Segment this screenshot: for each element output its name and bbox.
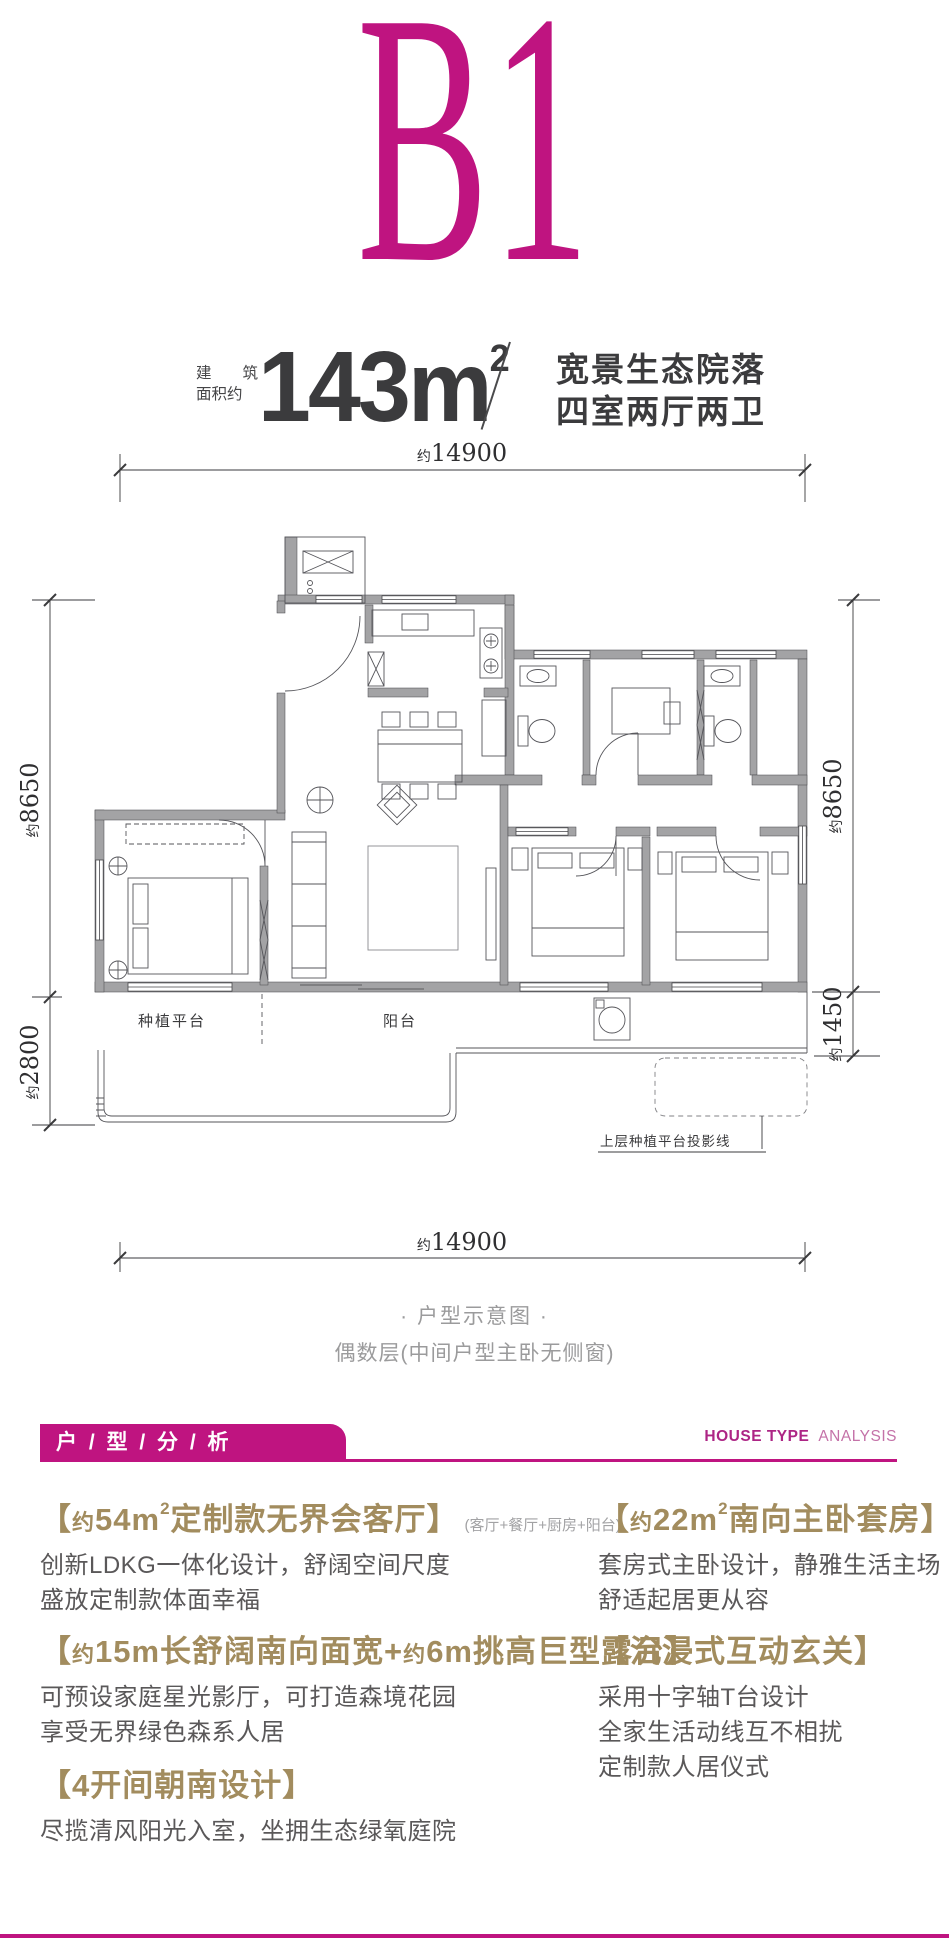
caption-line2: 偶数层(中间户型主卧无侧窗) bbox=[0, 1337, 949, 1367]
feature-line: 定制款人居仪式 bbox=[598, 1750, 886, 1785]
master-bedroom bbox=[109, 820, 265, 979]
area-label: 建筑 面积约 bbox=[196, 363, 258, 405]
analysis-en-bold: HOUSE TYPE bbox=[704, 1428, 809, 1445]
dim-right-upper: 约8650 bbox=[819, 758, 847, 833]
feature-living-room: 【约54m2定制款无界会客厅】(客厅+餐厅+厨房+阳台) 创新LDKG一体化设计… bbox=[40, 1494, 621, 1618]
feature-body: 创新LDKG一体化设计，舒阔空间尺度 盛放定制款体面幸福 bbox=[40, 1548, 621, 1618]
feature-body: 采用十字轴T台设计 全家生活动线互不相扰 定制款人居仪式 bbox=[598, 1680, 886, 1785]
area-label-line2: 面积约 bbox=[196, 384, 258, 405]
feature-line: 尽揽清风阳光入室，坐拥生态绿氧庭院 bbox=[40, 1814, 457, 1849]
feature-headline: 【约54m2定制款无界会客厅】(客厅+餐厅+厨房+阳台) bbox=[40, 1494, 621, 1539]
feature-headline: 【沉浸式互动玄关】 bbox=[598, 1626, 886, 1671]
area-value: 143m2 bbox=[258, 330, 510, 445]
dim-left-lower: 约2800 bbox=[16, 1024, 44, 1099]
feature-line: 盛放定制款体面幸福 bbox=[40, 1583, 621, 1618]
study-room bbox=[596, 688, 680, 775]
analysis-section-tab: 户 / 型 / 分 / 析 bbox=[40, 1424, 346, 1460]
bathroom-2 bbox=[704, 666, 741, 746]
plan-description: 宽景生态院落 四室两厅两卫 bbox=[556, 349, 766, 433]
poster-page: B1 建筑 面积约 143m2 宽景生态院落 四室两厅两卫 bbox=[0, 0, 949, 1946]
feature-line: 全家生活动线互不相扰 bbox=[598, 1715, 886, 1750]
feature-body: 套房式主卧设计，静雅生活主场 舒适起居更从容 bbox=[598, 1548, 949, 1618]
feature-line: 舒适起居更从容 bbox=[598, 1583, 949, 1618]
analysis-en-light: ANALYSIS bbox=[818, 1428, 897, 1445]
dim-bottom: 约14900 bbox=[417, 1228, 507, 1256]
kitchen bbox=[368, 610, 506, 756]
feature-headline: 【约22m2南向主卧套房】 bbox=[598, 1494, 949, 1539]
furniture bbox=[96, 537, 807, 1152]
caption-line1: · 户型示意图 · bbox=[0, 1300, 949, 1330]
feature-master-suite: 【约22m2南向主卧套房】 套房式主卧设计，静雅生活主场 舒适起居更从容 bbox=[598, 1494, 949, 1618]
feature-foyer: 【沉浸式互动玄关】 采用十字轴T台设计 全家生活动线互不相扰 定制款人居仪式 bbox=[598, 1626, 886, 1785]
feature-body: 尽揽清风阳光入室，坐拥生态绿氧庭院 bbox=[40, 1814, 457, 1849]
feature-headline: 【4开间朝南设计】 bbox=[40, 1760, 457, 1805]
entry-door-arc bbox=[285, 616, 360, 691]
analysis-rule bbox=[40, 1459, 897, 1462]
analysis-english-title: HOUSE TYPEANALYSIS bbox=[704, 1428, 897, 1446]
planting-platform-label: 种植平台 bbox=[138, 1013, 206, 1030]
plan-description-line2: 四室两厅两卫 bbox=[556, 391, 766, 433]
walls bbox=[95, 537, 807, 992]
feature-four-bays: 【4开间朝南设计】 尽揽清风阳光入室，坐拥生态绿氧庭院 bbox=[40, 1760, 457, 1849]
living-room bbox=[292, 785, 496, 978]
bedroom-2 bbox=[512, 836, 642, 956]
bottom-accent-bar bbox=[0, 1934, 949, 1938]
floor-plan: 约14900 约14900 约8650 约2800 约8650 约1450 种植… bbox=[0, 430, 949, 1290]
plan-caption: · 户型示意图 · 偶数层(中间户型主卧无侧窗) bbox=[0, 1300, 949, 1367]
bathroom-1 bbox=[518, 666, 556, 746]
dining-area bbox=[378, 712, 462, 799]
plan-labels: 种植平台 阳台 上层种植平台投影线 bbox=[138, 1013, 731, 1149]
dimension-lines bbox=[32, 454, 880, 1272]
dim-top: 约14900 bbox=[417, 439, 507, 467]
plan-code-title: B1 bbox=[214, 0, 736, 318]
balcony bbox=[96, 992, 807, 1122]
dim-left-upper: 约8650 bbox=[16, 762, 44, 837]
feature-line: 创新LDKG一体化设计，舒阔空间尺度 bbox=[40, 1548, 621, 1583]
dim-right-lower: 约1450 bbox=[819, 986, 847, 1061]
projection-outline bbox=[655, 1058, 807, 1116]
balcony-label: 阳台 bbox=[383, 1013, 417, 1030]
feature-line: 套房式主卧设计，静雅生活主场 bbox=[598, 1548, 949, 1583]
suite-bedroom bbox=[658, 836, 788, 960]
area-label-line1: 建筑 bbox=[196, 363, 258, 384]
projection-label: 上层种植平台投影线 bbox=[600, 1134, 731, 1149]
plan-description-line1: 宽景生态院落 bbox=[556, 349, 766, 391]
feature-line: 采用十字轴T台设计 bbox=[598, 1680, 886, 1715]
